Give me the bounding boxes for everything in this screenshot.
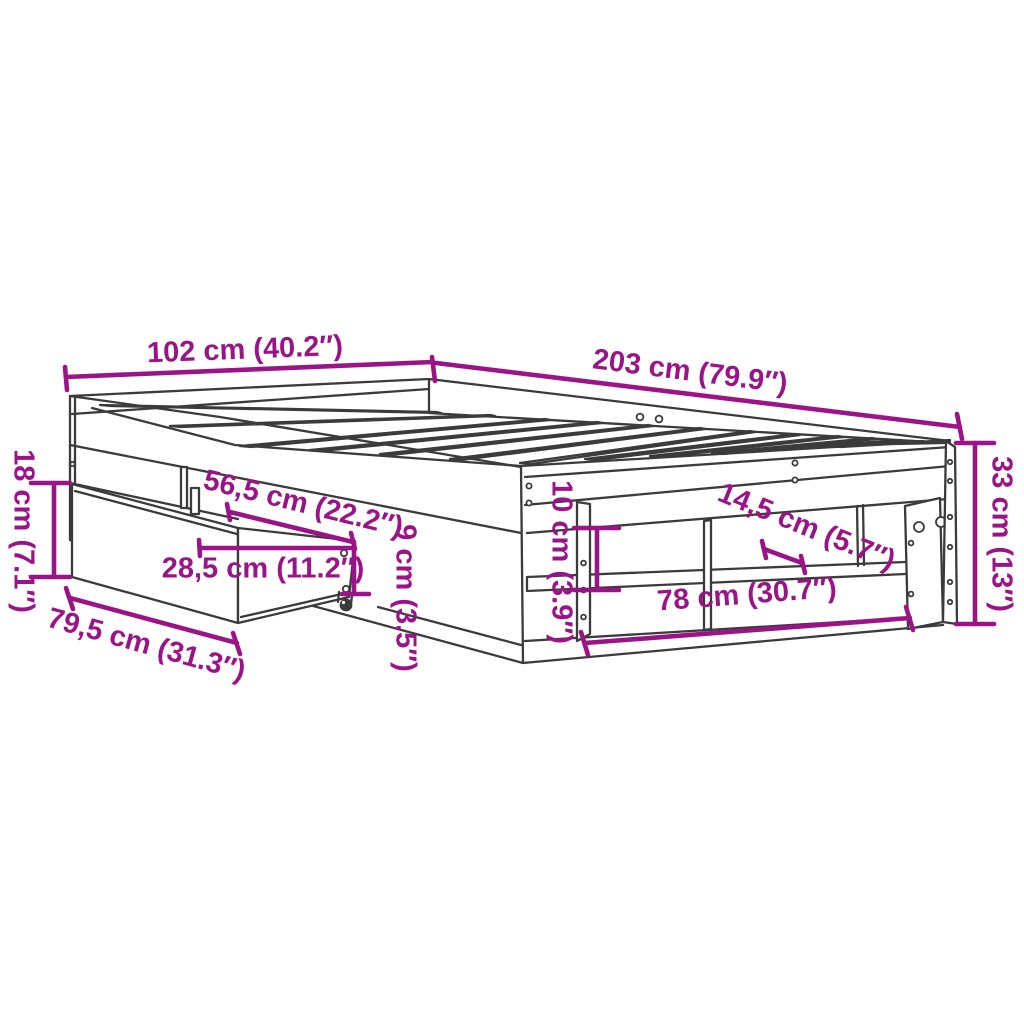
dimension-line: [227, 504, 230, 520]
bed-frame-dimension-drawing: 102 cm (40.2″)203 cm (79.9″)18 cm (7.1″)…: [0, 0, 1024, 1024]
foot-end-edge: [943, 441, 957, 624]
dimension-label: 28,5 cm (11.2″): [162, 553, 365, 585]
dimension-label: 10 cm (3.9″): [545, 480, 577, 644]
dimension-label: 9 cm (3.5″): [389, 524, 421, 672]
dimension-line: [432, 357, 435, 381]
product-dimension-diagram: 102 cm (40.2″)203 cm (79.9″)18 cm (7.1″)…: [0, 0, 1024, 1024]
dimension-label: 33 cm (13″): [985, 456, 1017, 612]
dimension-drawer-front-height: 18 cm (7.1″): [7, 449, 70, 613]
dimension-line: [957, 414, 962, 439]
dimension-frame-height: 33 cm (13″): [956, 443, 1017, 624]
dimension-label: 203 cm (79.9″): [591, 343, 790, 400]
dimension-label: 18 cm (7.1″): [7, 449, 39, 613]
drawer-rail: [191, 488, 199, 514]
dimension-line: [65, 367, 67, 390]
dimension-label: 102 cm (40.2″): [146, 330, 343, 370]
drawer-rail: [181, 467, 187, 508]
